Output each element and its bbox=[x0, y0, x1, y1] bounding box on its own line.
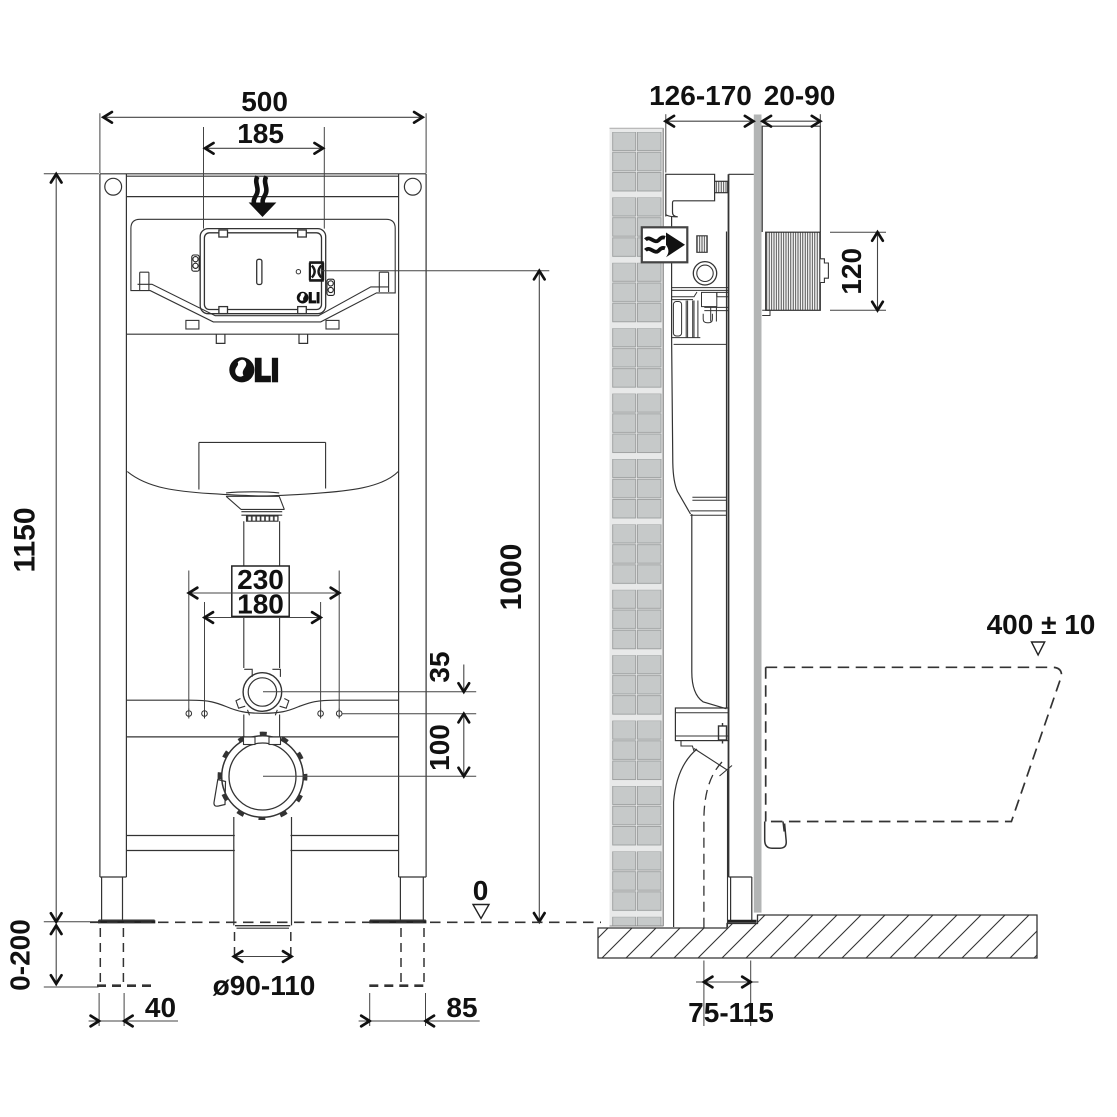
svg-text:500: 500 bbox=[241, 86, 288, 117]
svg-text:0: 0 bbox=[473, 875, 489, 906]
svg-text:1150: 1150 bbox=[9, 507, 42, 572]
svg-text:35: 35 bbox=[424, 651, 455, 682]
svg-text:120: 120 bbox=[836, 248, 867, 295]
svg-text:40: 40 bbox=[145, 992, 176, 1023]
svg-text:400 ± 10: 400 ± 10 bbox=[987, 609, 1096, 640]
svg-text:180: 180 bbox=[237, 589, 284, 620]
svg-text:126-170: 126-170 bbox=[649, 80, 752, 111]
svg-text:185: 185 bbox=[237, 118, 284, 149]
svg-text:75-115: 75-115 bbox=[688, 997, 774, 1028]
svg-text:1000: 1000 bbox=[495, 544, 528, 611]
svg-text:ø90-110: ø90-110 bbox=[213, 970, 316, 1001]
svg-text:0-200: 0-200 bbox=[5, 919, 36, 991]
svg-text:20-90: 20-90 bbox=[764, 80, 836, 111]
svg-text:100: 100 bbox=[424, 724, 455, 771]
svg-text:85: 85 bbox=[446, 992, 477, 1023]
